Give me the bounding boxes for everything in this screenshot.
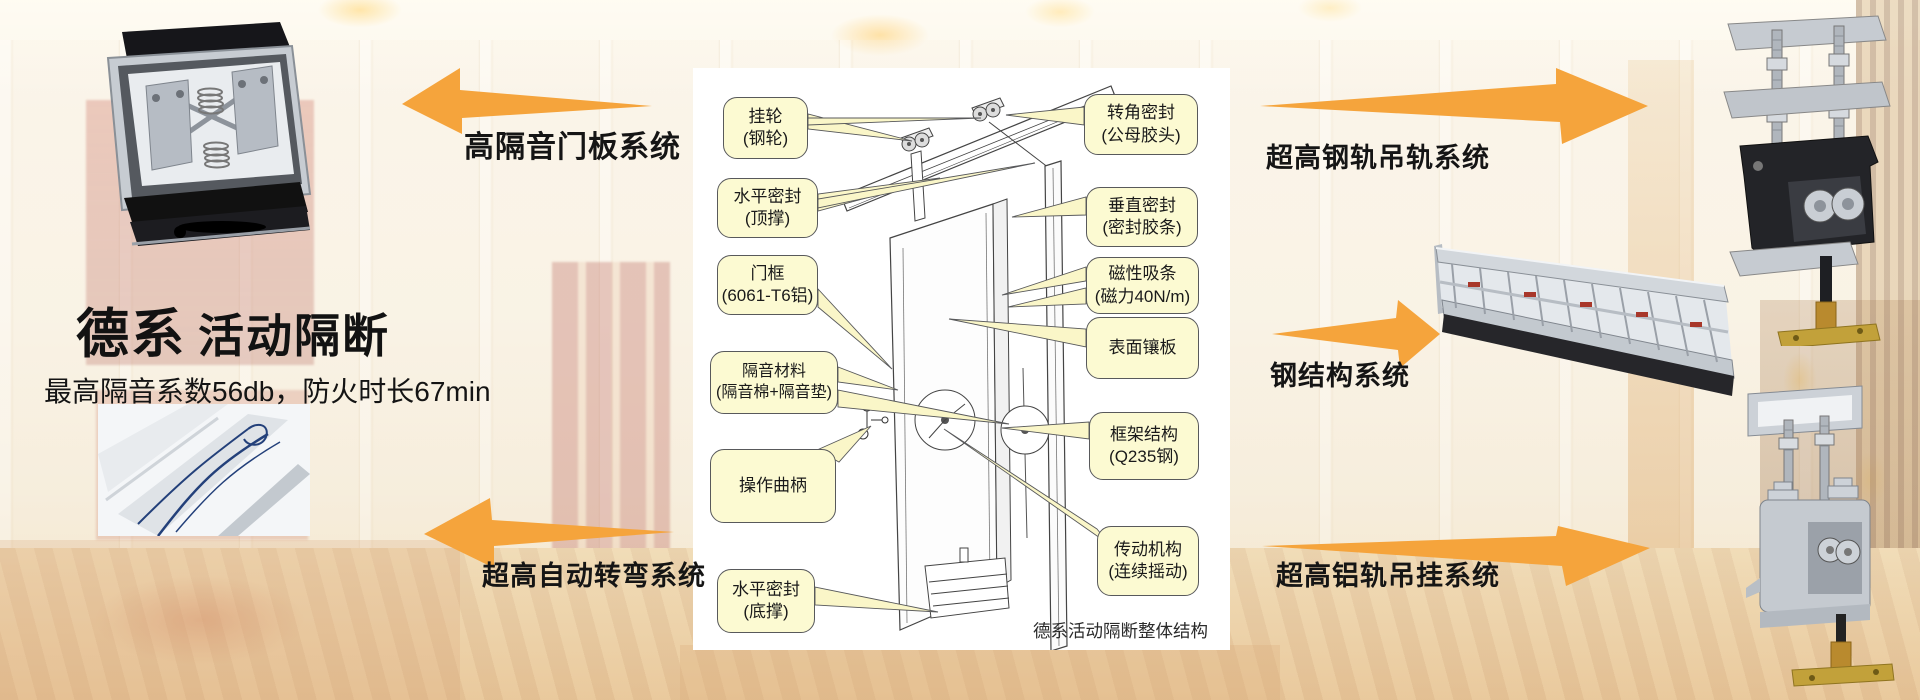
callout-corner-seal: 转角密封 (公母胶头)	[1084, 94, 1198, 155]
curved-track-profile-photo	[98, 404, 310, 536]
door-panel-cross-section-photo	[84, 6, 316, 254]
label-door-panel-system: 高隔音门板系统	[464, 122, 681, 166]
page-subtitle: 最高隔音系数56db，防火时长67min	[44, 370, 491, 410]
page-title: 德系活动隔断	[76, 292, 390, 368]
steel-structure-frame-photo	[1432, 182, 1750, 407]
background-carpet-center	[680, 645, 1280, 700]
label-steel-structure-system: 钢结构系统	[1270, 354, 1410, 393]
partition-structure-diagram: 挂轮 (钢轮) 水平密封 (顶撑) 门框 (6061-T6铝) 隔音材料 (隔音…	[693, 68, 1230, 650]
callout-horizontal-seal-bottom: 水平密封 (底撑)	[717, 569, 815, 633]
page-title-primary: 德系	[76, 305, 186, 364]
label-auto-turning-system: 超高自动转弯系统	[482, 554, 706, 593]
callout-vertical-seal: 垂直密封 (密封胶条)	[1086, 187, 1198, 247]
partition-infographic: 德系活动隔断 最高隔音系数56db，防火时长67min 高隔音门板系统 超高自动…	[0, 0, 1920, 700]
callout-magnetic-strip: 磁性吸条 (磁力40N/m)	[1086, 257, 1199, 314]
aluminum-rail-trolley-photo	[1732, 382, 1897, 687]
callout-surface-panel: 表面镶板	[1086, 317, 1199, 379]
callout-operating-crank: 操作曲柄	[710, 449, 836, 523]
callout-transmission: 传动机构 (连续摇动)	[1097, 526, 1199, 596]
callout-sound-insulation: 隔音材料 (隔音棉+隔音垫)	[710, 351, 838, 414]
page-title-secondary: 活动隔断	[198, 310, 390, 362]
background-carpet-left	[0, 540, 460, 700]
callout-frame-structure: 框架结构 (Q235钢)	[1089, 412, 1199, 480]
diagram-caption: 德系活动隔断整体结构	[1033, 618, 1208, 643]
callout-door-frame: 门框 (6061-T6铝)	[717, 255, 818, 315]
callout-hanging-wheel: 挂轮 (钢轮)	[723, 97, 808, 159]
callout-horizontal-seal-top: 水平密封 (顶撑)	[717, 178, 818, 238]
label-steel-rail-system: 超高钢轨吊轨系统	[1266, 136, 1490, 175]
arrow-right-steel-rail	[1256, 60, 1654, 148]
label-aluminum-rail-system: 超高铝轨吊挂系统	[1276, 554, 1500, 593]
